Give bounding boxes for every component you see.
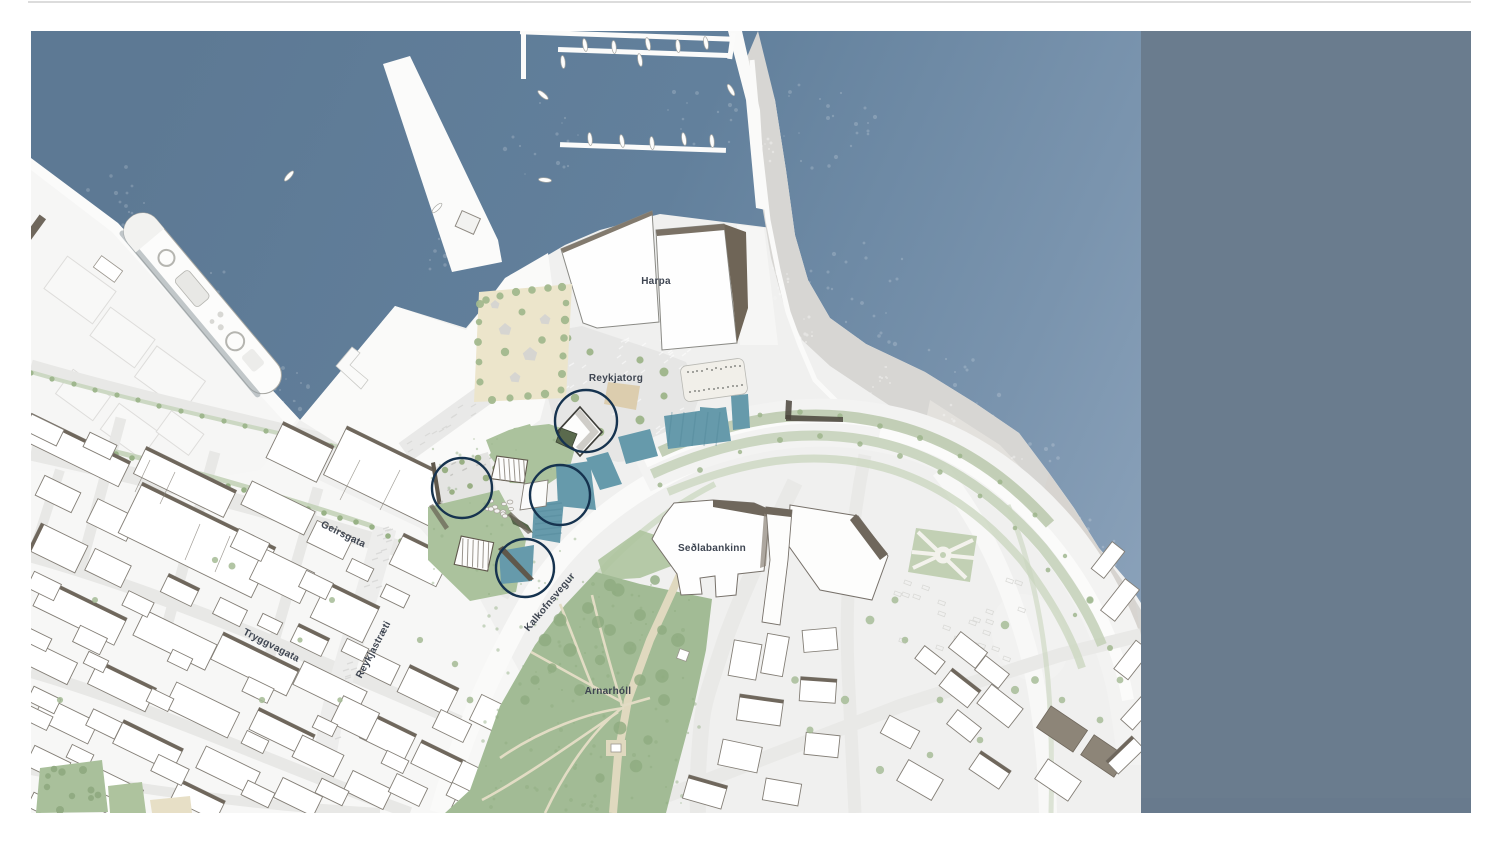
svg-text:Harpa: Harpa: [641, 276, 671, 287]
svg-text:Arnarhóll: Arnarhóll: [585, 686, 632, 697]
svg-text:Seðlabankinn: Seðlabankinn: [678, 542, 746, 554]
svg-text:Reykjatorg: Reykjatorg: [589, 373, 643, 384]
